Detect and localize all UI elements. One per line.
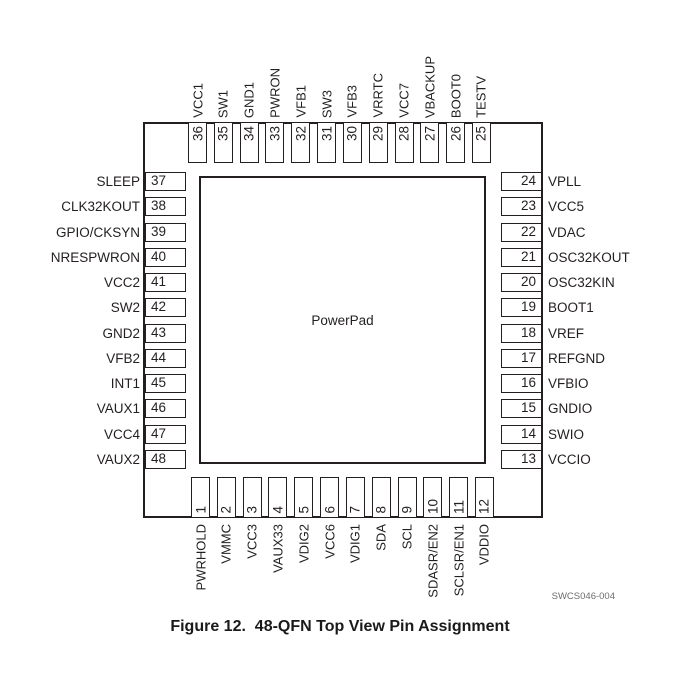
pin-box: 34 [240, 122, 259, 163]
pin-box: 16 [501, 374, 542, 393]
pin-label: VFB2 [40, 349, 140, 368]
pin-box: 35 [214, 122, 233, 163]
pin-box: 15 [501, 399, 542, 418]
pin-label: VCC2 [40, 273, 140, 292]
pin-box: 22 [501, 223, 542, 242]
pin-label: SW3 [319, 90, 334, 118]
pin-label: VCC4 [40, 425, 140, 444]
pin-box: 40 [145, 248, 186, 267]
pin-label: PWRON [267, 68, 282, 118]
pin-label-cell: VDIG1 [346, 524, 365, 604]
pin-box: 10 [423, 477, 442, 518]
pin-label: NRESPWRON [40, 248, 140, 267]
pin-label: VMMC [219, 524, 234, 564]
pin-label: OSC32KIN [548, 273, 678, 292]
pin-box: 14 [501, 425, 542, 444]
pin-number: 5 [296, 506, 311, 514]
pin-box: 21 [501, 248, 542, 267]
pin-label: VDDIO [477, 524, 492, 565]
pin-number: 12 [477, 499, 492, 514]
pin-label: VCC7 [397, 83, 412, 118]
pin-label: PWRHOLD [193, 524, 208, 590]
pin-number: 32 [293, 126, 308, 141]
pin-label-cell: VCC7 [395, 52, 414, 118]
pin-box: 48 [145, 450, 186, 469]
right-pin-boxes: 24 23 22 21 20 19 18 17 16 15 14 13 [501, 172, 542, 469]
pin-label-cell: BOOT0 [446, 52, 465, 118]
pin-label: SWIO [548, 425, 678, 444]
pin-box: 8 [372, 477, 391, 518]
pin-box: 26 [446, 122, 465, 163]
pin-box: 3 [243, 477, 262, 518]
figure-canvas: PowerPad VCC1 SW1 GND1 PWRON VFB1 SW3 VF… [0, 0, 700, 700]
pin-number: 35 [216, 126, 231, 141]
pin-box: 32 [291, 122, 310, 163]
pin-label-cell: VFB3 [343, 52, 362, 118]
pin-box: 45 [145, 374, 186, 393]
pin-number: 25 [474, 126, 489, 141]
pin-box: 23 [501, 197, 542, 216]
pin-label: VRRTC [371, 73, 386, 118]
pin-label-cell: VMMC [217, 524, 236, 604]
pin-box: 44 [145, 349, 186, 368]
pin-label: OSC32KOUT [548, 248, 678, 267]
pin-label: VREF [548, 324, 678, 343]
pin-number: 11 [451, 500, 466, 514]
pin-label-cell: VFB1 [291, 52, 310, 118]
pin-box: 7 [346, 477, 365, 518]
pin-number: 8 [374, 506, 389, 514]
pin-label: VPLL [548, 172, 678, 191]
pin-label: VCCIO [548, 450, 678, 469]
pin-box: 9 [398, 477, 417, 518]
pin-box: 17 [501, 349, 542, 368]
figure-caption: Figure 12. 48-QFN Top View Pin Assignmen… [0, 618, 680, 636]
pin-label: SW2 [40, 298, 140, 317]
pin-number: 10 [425, 499, 440, 514]
bottom-pin-boxes: 1 2 3 4 5 6 7 8 9 10 11 12 [191, 477, 494, 518]
pin-number: 9 [400, 506, 415, 514]
pin-label: VFB3 [345, 85, 360, 118]
pin-label: VAUX33 [270, 524, 285, 573]
pin-label-cell: SW3 [317, 52, 336, 118]
pin-box: 20 [501, 273, 542, 292]
pin-label-cell: GND1 [240, 52, 259, 118]
pin-label-cell: SDA [372, 524, 391, 604]
pin-box: 4 [268, 477, 287, 518]
pin-box: 46 [145, 399, 186, 418]
bottom-pin-labels: PWRHOLD VMMC VCC3 VAUX33 VDIG2 VCC6 VDIG… [191, 524, 494, 604]
top-pin-boxes: 36 35 34 33 32 31 30 29 28 27 26 25 [188, 122, 491, 163]
pin-box: 42 [145, 298, 186, 317]
pin-box: 24 [501, 172, 542, 191]
pin-number: 36 [190, 126, 205, 141]
pin-number: 26 [448, 126, 463, 141]
pin-box: 30 [343, 122, 362, 163]
pin-label-cell: VDIG2 [294, 524, 313, 604]
pin-number: 4 [270, 506, 285, 514]
pin-label: VDIG2 [296, 524, 311, 563]
pin-label-cell: SCLSR/EN1 [449, 524, 468, 604]
pin-label: VFBIO [548, 374, 678, 393]
pin-box: 18 [501, 324, 542, 343]
left-pin-boxes: 37 38 39 40 41 42 43 44 45 46 47 48 [145, 172, 186, 469]
pin-box: 36 [188, 122, 207, 163]
pin-label: GND2 [40, 324, 140, 343]
powerpad-label: PowerPad [311, 313, 373, 328]
pin-number: 30 [345, 126, 360, 141]
pin-box: 28 [395, 122, 414, 163]
pin-box: 43 [145, 324, 186, 343]
pin-label: VCC3 [245, 524, 260, 559]
pin-label: VBACKUP [422, 56, 437, 118]
pin-label-cell: SCL [398, 524, 417, 604]
pin-number: 3 [245, 506, 260, 514]
pin-box: 38 [145, 197, 186, 216]
pin-label-cell: VBACKUP [420, 52, 439, 118]
pin-box: 12 [475, 477, 494, 518]
pin-box: 1 [191, 477, 210, 518]
pin-number: 28 [397, 126, 412, 141]
pin-label: SCLSR/EN1 [451, 524, 466, 596]
pin-label: VFB1 [293, 85, 308, 118]
pin-box: 39 [145, 223, 186, 242]
doc-code: SWCS046-004 [470, 591, 615, 602]
pin-label: CLK32KOUT [40, 197, 140, 216]
pin-box: 13 [501, 450, 542, 469]
pin-box: 6 [320, 477, 339, 518]
pin-label: GPIO/CKSYN [40, 223, 140, 242]
pin-box: 5 [294, 477, 313, 518]
pin-label-cell: PWRHOLD [191, 524, 210, 604]
pin-box: 19 [501, 298, 542, 317]
pin-label: REFGND [548, 349, 678, 368]
pin-label: SLEEP [40, 172, 140, 191]
pin-box: 33 [265, 122, 284, 163]
pin-label: VCC6 [322, 524, 337, 559]
pin-label: VDIG1 [348, 524, 363, 563]
pin-number: 7 [348, 506, 363, 514]
right-pin-labels: VPLL VCC5 VDAC OSC32KOUT OSC32KIN BOOT1 … [548, 172, 678, 469]
pin-box: 11 [449, 477, 468, 518]
powerpad-region: PowerPad [199, 176, 486, 464]
pin-label: SDA [374, 524, 389, 551]
pin-box: 41 [145, 273, 186, 292]
pin-label-cell: TESTV [472, 52, 491, 118]
pin-number: 27 [422, 126, 437, 141]
top-pin-labels: VCC1 SW1 GND1 PWRON VFB1 SW3 VFB3 VRRTC … [188, 52, 491, 118]
pin-label-cell: VCC1 [188, 52, 207, 118]
pin-number: 31 [319, 126, 334, 141]
pin-label: VAUX1 [40, 399, 140, 418]
pin-label: GNDIO [548, 399, 678, 418]
pin-label: INT1 [40, 374, 140, 393]
pin-box: 2 [217, 477, 236, 518]
pin-label-cell: VCC6 [320, 524, 339, 604]
pin-label: VDAC [548, 223, 678, 242]
pin-label-cell: SDASR/EN2 [423, 524, 442, 604]
pin-box: 47 [145, 425, 186, 444]
pin-label: SCL [400, 524, 415, 549]
pin-label-cell: VCC3 [243, 524, 262, 604]
pin-number: 34 [242, 126, 257, 141]
pin-label: VAUX2 [40, 450, 140, 469]
pin-label-cell: SW1 [214, 52, 233, 118]
left-pin-labels: SLEEP CLK32KOUT GPIO/CKSYN NRESPWRON VCC… [40, 172, 140, 469]
pin-label: VCC1 [190, 83, 205, 118]
pin-label: BOOT0 [448, 74, 463, 118]
pin-label-cell: VAUX33 [268, 524, 287, 604]
pin-box: 31 [317, 122, 336, 163]
pin-box: 27 [420, 122, 439, 163]
pin-label-cell: VRRTC [369, 52, 388, 118]
pin-label: VCC5 [548, 197, 678, 216]
pin-label: SW1 [216, 90, 231, 118]
pin-number: 1 [193, 506, 208, 514]
pin-label: SDASR/EN2 [425, 524, 440, 598]
pin-number: 6 [322, 506, 337, 514]
pin-label-cell: PWRON [265, 52, 284, 118]
pin-number: 33 [267, 126, 282, 141]
pin-box: 25 [472, 122, 491, 163]
pin-box: 29 [369, 122, 388, 163]
pin-label: GND1 [242, 82, 257, 118]
pin-label: BOOT1 [548, 298, 678, 317]
pin-label: TESTV [474, 76, 489, 118]
pin-number: 2 [219, 506, 234, 514]
pin-number: 29 [371, 126, 386, 141]
pin-box: 37 [145, 172, 186, 191]
